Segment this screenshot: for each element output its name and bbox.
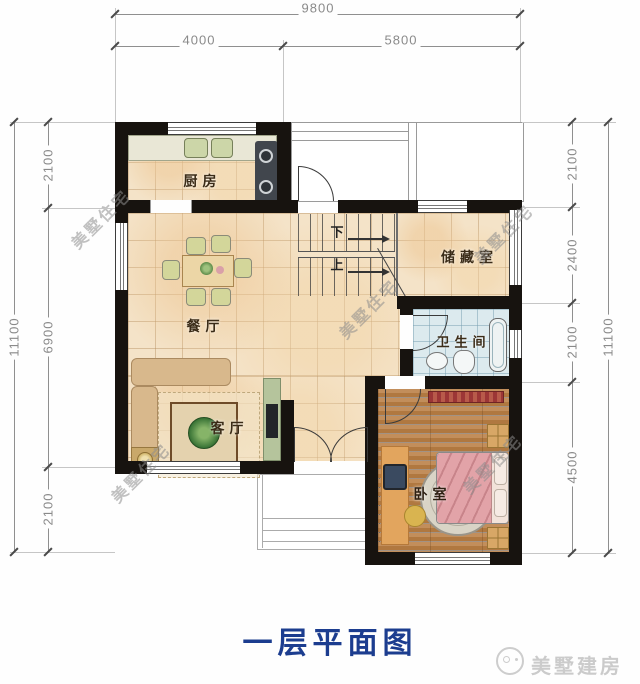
- window: [509, 330, 522, 358]
- desk: [381, 446, 409, 545]
- dim-right-total: 11100: [601, 314, 616, 359]
- room-label-kitchen: 厨房: [179, 171, 222, 191]
- window: [418, 200, 467, 213]
- room-label-bedroom: 卧室: [409, 484, 452, 504]
- wall: [425, 376, 522, 389]
- dim-right-seg2: 2400: [565, 236, 580, 275]
- wall: [400, 309, 413, 315]
- entry-steps: [257, 474, 380, 550]
- dim-right-seg4: 4500: [565, 448, 580, 487]
- dim-left-seg2: 6900: [41, 318, 56, 357]
- room-label-bathroom: 卫生间: [431, 332, 490, 351]
- room-label-living: 客厅: [206, 418, 249, 438]
- window: [415, 552, 490, 565]
- desk-chair: [404, 505, 426, 527]
- table-plant-icon: [200, 262, 213, 275]
- dim-left-seg1: 2100: [41, 146, 56, 185]
- dining-chair: [211, 288, 231, 306]
- kitchen-sink: [211, 138, 233, 158]
- wall: [397, 296, 522, 309]
- wall: [338, 200, 418, 213]
- wall: [365, 376, 385, 389]
- wall: [400, 349, 413, 376]
- monitor-icon: [383, 464, 407, 490]
- stove-burner-icon: [259, 149, 273, 163]
- dim-right-seg1: 2100: [565, 145, 580, 184]
- wall: [115, 290, 128, 474]
- stair-down-label: 下: [330, 222, 343, 241]
- wall: [509, 358, 522, 565]
- nightstand: [487, 527, 509, 549]
- stair-up-arrow: [348, 271, 382, 273]
- stair-down-arrow: [348, 238, 382, 240]
- wall: [192, 200, 298, 213]
- room-label-dining: 餐厅: [182, 316, 225, 336]
- table-deco-icon: [216, 266, 224, 274]
- wall: [365, 552, 415, 565]
- wall: [490, 552, 522, 565]
- plan-title: 一层平面图: [243, 618, 418, 662]
- bathroom-sink: [426, 352, 448, 370]
- toilet: [453, 350, 475, 374]
- window: [115, 223, 128, 290]
- stair-up-label: 上: [330, 255, 343, 274]
- brand-logo-icon: [496, 647, 524, 675]
- dining-chair: [162, 260, 180, 280]
- dining-chair: [186, 237, 206, 255]
- bathtub-inner: [492, 322, 504, 368]
- dim-top-total: 9800: [299, 1, 338, 16]
- wall: [240, 461, 294, 474]
- pillow: [494, 489, 507, 517]
- dining-chair: [186, 288, 206, 306]
- dining-chair: [211, 235, 231, 253]
- brand-name: 美墅建房: [531, 650, 623, 679]
- stove-burner-icon: [259, 180, 273, 194]
- dim-top-seg1: 4000: [180, 33, 219, 48]
- dim-left-total: 11100: [7, 314, 22, 359]
- sofa: [131, 358, 231, 386]
- dim-right-seg3: 2100: [565, 323, 580, 362]
- dim-top-seg2: 5800: [382, 33, 421, 48]
- dining-chair: [234, 258, 252, 278]
- wall: [365, 389, 378, 565]
- kitchen-sink: [184, 138, 208, 158]
- window: [168, 122, 256, 135]
- dim-left-seg3: 2100: [41, 490, 56, 529]
- wall: [281, 400, 294, 461]
- tv-icon: [266, 404, 278, 438]
- doormat: [428, 391, 504, 403]
- floor-plan: 下 上: [0, 0, 640, 684]
